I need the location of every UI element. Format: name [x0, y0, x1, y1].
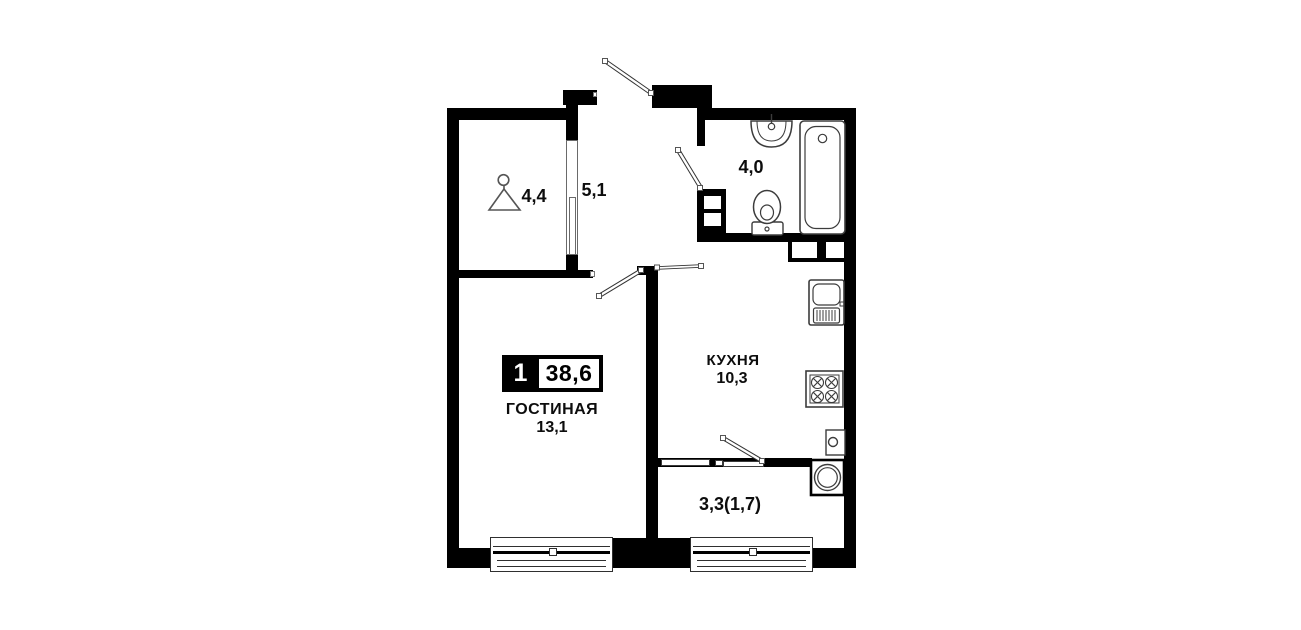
room-name-kitchen: КУХНЯ	[707, 353, 760, 368]
toilet	[752, 191, 783, 236]
washing-machine	[811, 460, 844, 495]
unit-total-area-box: 38,6	[539, 359, 599, 388]
hanger-icon	[489, 175, 520, 210]
unit-badge: 1 38,6	[502, 355, 603, 392]
bathroom-sink	[751, 114, 792, 147]
stove	[806, 371, 843, 407]
room-label-kitchen: 10,3	[716, 371, 747, 387]
balcony-door	[721, 436, 765, 464]
floor-plan: 4,4 5,1 4,0 КУХНЯ 10,3 ГОСТИНАЯ 13,1 3,3…	[0, 0, 1301, 630]
unit-rooms-count: 1	[502, 355, 539, 392]
bathtub	[800, 121, 845, 234]
bathroom-door	[676, 148, 703, 191]
room-label-balcony: 3,3(1,7)	[699, 495, 761, 513]
living-room-door	[597, 268, 644, 299]
room-label-living: 13,1	[536, 420, 567, 436]
room-label-bathroom: 4,0	[738, 158, 763, 176]
kitchen-passage-line	[655, 264, 704, 271]
kitchen-sink	[809, 280, 844, 325]
room-label-wardrobe: 4,4	[521, 187, 546, 205]
water-heater	[826, 430, 845, 455]
fixtures-layer	[0, 0, 1301, 630]
room-label-hallway: 5,1	[581, 181, 606, 199]
room-name-living: ГОСТИНАЯ	[506, 402, 598, 418]
entrance-door	[603, 59, 654, 96]
unit-total-area: 38,6	[546, 360, 593, 387]
